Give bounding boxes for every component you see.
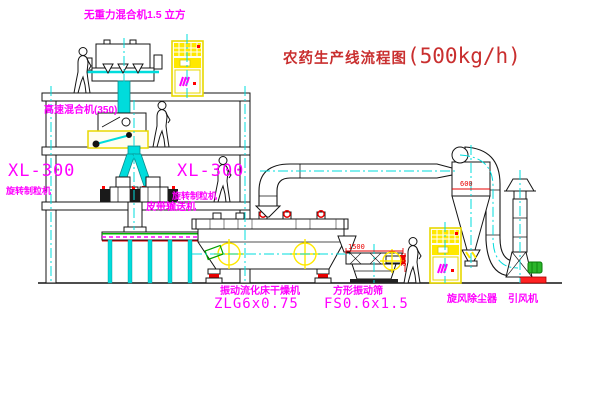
high-speed-mixer-drawing: [88, 113, 148, 148]
flow-diagram-canvas: 农药生产线流程图(500kg/h) 无重力混合机1.5 立方 高速混合机(350…: [0, 0, 600, 403]
granulator-right: [130, 177, 178, 202]
dim-cyclone-diameter: 600: [460, 181, 473, 188]
page-title-capacity: (500kg/h): [407, 44, 521, 68]
label-high-speed-mixer: 高速混合机(350): [44, 106, 117, 116]
page-title: 农药生产线流程图(500kg/h): [283, 44, 521, 68]
person-2: [153, 102, 170, 148]
dim-sieve-height: 342: [399, 254, 406, 267]
label-sieve-model: FS0.6x1.5: [324, 297, 409, 311]
fluid-bed-dryer-drawing: [192, 211, 356, 283]
bucket-elevator-1: [172, 41, 203, 96]
exhaust-duct: [256, 164, 452, 217]
label-granulator-left-name: 旋转制粒机: [6, 187, 51, 196]
label-gravity-mixer: 无重力混合机1.5 立方: [84, 10, 186, 21]
label-granulator-right-name: 旋转制粒机: [172, 192, 217, 201]
label-cyclone: 旋风除尘器: [447, 295, 497, 305]
belt-conveyor-drawing: [102, 232, 198, 283]
label-fan: 引风机: [508, 295, 538, 305]
dim-sieve-width: 1500: [348, 244, 365, 251]
label-granulator-right-model: XL-300: [177, 163, 244, 180]
label-dryer-model: ZLG6x0.75: [214, 297, 299, 311]
label-belt-conveyor: 皮带输送机: [146, 203, 196, 213]
square-sieve-drawing: [346, 249, 405, 283]
label-granulator-left-model: XL-300: [8, 163, 75, 180]
page-title-text: 农药生产线流程图: [283, 47, 407, 68]
